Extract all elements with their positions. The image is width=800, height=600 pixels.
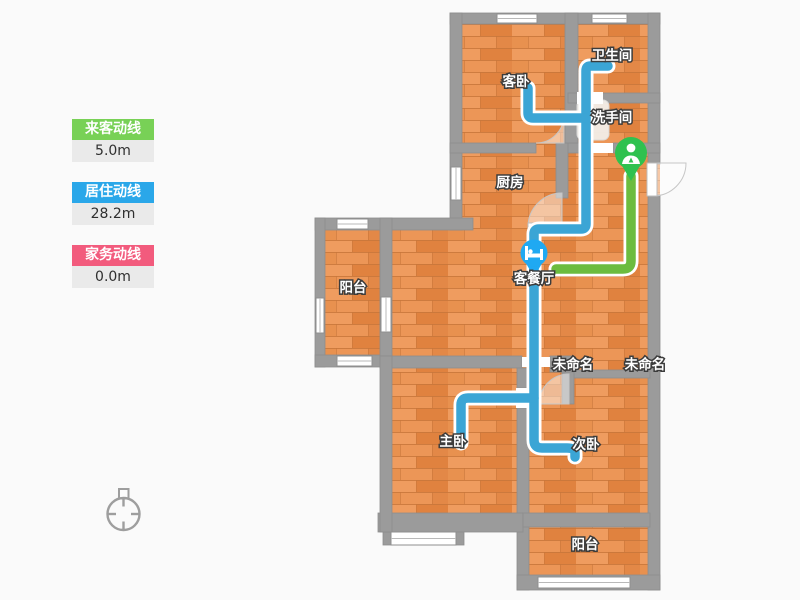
legend-value-housework-route: 0.0m [72, 266, 154, 288]
floorplan-viewer: 客卧 卫生间 洗手间 厨房 客餐厅 阳台 未命名 未命名 主卧 次卧 阳台 来客… [0, 0, 800, 600]
wall [450, 143, 536, 153]
legend-value-visitor-route: 5.0m [72, 140, 154, 162]
wall [380, 218, 392, 367]
window [381, 297, 391, 332]
wall [556, 143, 568, 198]
wall [380, 356, 392, 532]
room-label-unnamed-2: 未命名 [625, 356, 666, 373]
room-floor-guest-bedroom [452, 13, 660, 153]
window [538, 577, 630, 588]
legend-label-housework-route: 家务动线 [72, 245, 154, 266]
window [316, 298, 324, 333]
wall [648, 195, 660, 590]
legend-item-visitor-route[interactable]: 来客动线 5.0m [72, 119, 154, 162]
room-label-guest-bedroom: 客卧 [502, 73, 531, 90]
wall [456, 532, 464, 545]
wall [450, 13, 660, 24]
room-floor-living-dining [380, 218, 660, 378]
room-label-south-balcony: 阳台 [572, 536, 599, 553]
wall [523, 513, 650, 527]
wall [601, 93, 660, 103]
room-label-living-dining: 客餐厅 [513, 270, 555, 287]
legend-label-visitor-route: 来客动线 [72, 119, 154, 140]
window [451, 167, 461, 200]
legend-label-resident-route: 居住动线 [72, 182, 154, 203]
room-label-unnamed-1: 未命名 [553, 356, 594, 373]
room-label-bathroom: 卫生间 [592, 47, 633, 64]
wall [648, 13, 660, 164]
route-legend: 来客动线 5.0m 居住动线 28.2m 家务动线 0.0m [72, 119, 154, 308]
window [592, 14, 627, 23]
entrance-door-leaf [647, 163, 657, 196]
room-label-kitchen: 厨房 [497, 174, 524, 191]
legend-value-resident-route: 28.2m [72, 203, 154, 225]
wall [380, 356, 522, 368]
room-label-west-balcony: 阳台 [340, 279, 367, 296]
wall [568, 93, 578, 103]
window [337, 356, 372, 366]
window [337, 219, 368, 229]
wall [383, 532, 391, 545]
window [391, 532, 456, 545]
room-label-second-bedroom: 次卧 [573, 436, 601, 453]
window [497, 14, 537, 23]
entrance-door-arc [653, 163, 686, 196]
legend-item-resident-route[interactable]: 居住动线 28.2m [72, 182, 154, 225]
wall [378, 513, 523, 532]
legend-item-housework-route[interactable]: 家务动线 0.0m [72, 245, 154, 288]
wall [315, 218, 325, 367]
compass-north-indicator [108, 489, 140, 530]
room-label-washroom: 洗手间 [592, 109, 633, 126]
room-label-master-bedroom: 主卧 [440, 433, 467, 450]
